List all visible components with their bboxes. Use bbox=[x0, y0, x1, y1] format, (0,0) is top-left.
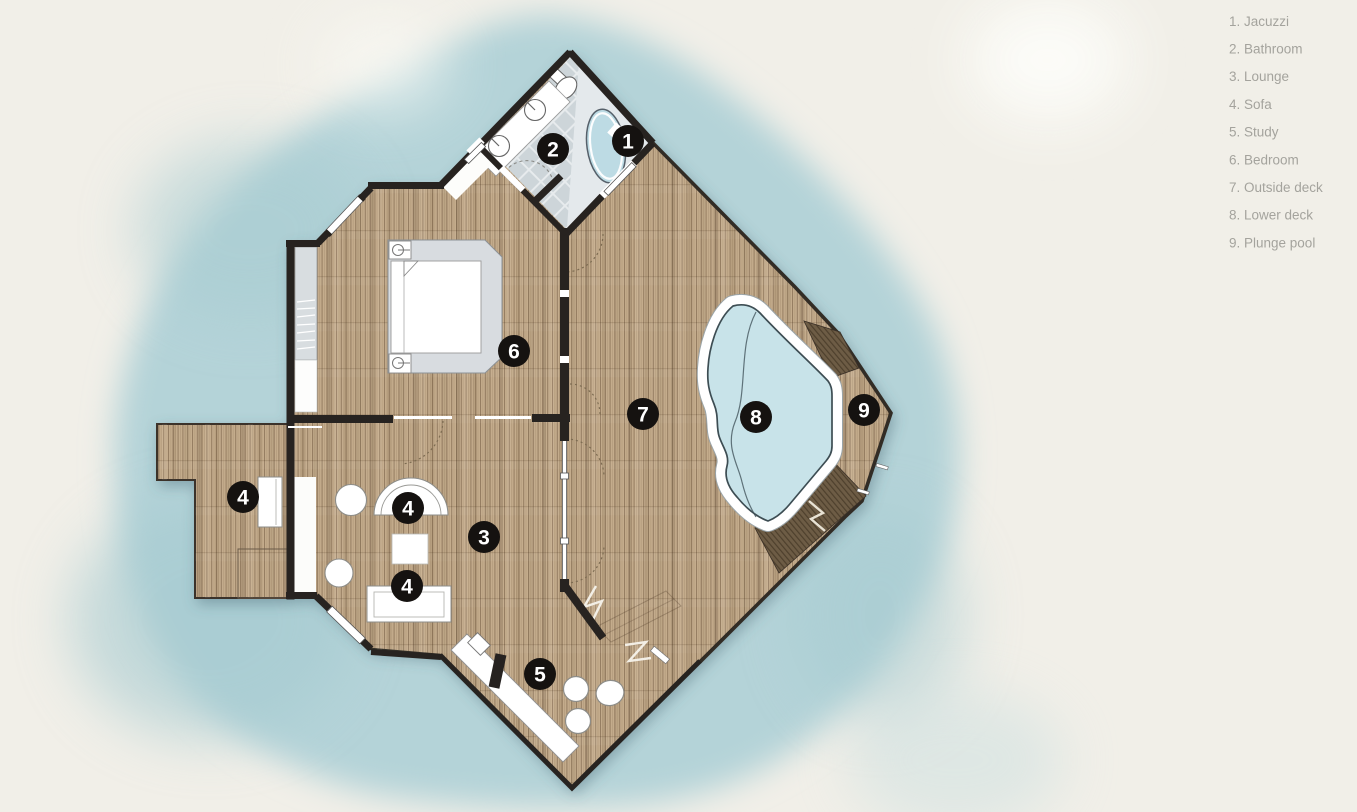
svg-text:6. Bedroom: 6. Bedroom bbox=[1229, 152, 1299, 167]
svg-text:3: 3 bbox=[478, 527, 490, 550]
svg-text:9. Plunge pool: 9. Plunge pool bbox=[1229, 235, 1315, 250]
svg-text:8: 8 bbox=[750, 407, 762, 430]
svg-text:5: 5 bbox=[534, 664, 546, 687]
svg-text:6: 6 bbox=[508, 341, 520, 364]
svg-text:1. Jacuzzi: 1. Jacuzzi bbox=[1229, 14, 1289, 29]
svg-text:8. Lower deck: 8. Lower deck bbox=[1229, 208, 1313, 223]
svg-text:7: 7 bbox=[637, 404, 649, 427]
svg-text:4: 4 bbox=[401, 576, 413, 599]
svg-text:7. Outside deck: 7. Outside deck bbox=[1229, 180, 1323, 195]
svg-text:2: 2 bbox=[547, 139, 559, 162]
svg-text:3. Lounge: 3. Lounge bbox=[1229, 69, 1289, 84]
svg-text:4: 4 bbox=[237, 487, 249, 510]
svg-text:1: 1 bbox=[622, 131, 634, 154]
svg-text:4: 4 bbox=[402, 498, 414, 521]
svg-text:4. Sofa: 4. Sofa bbox=[1229, 97, 1272, 112]
svg-text:2. Bathroom: 2. Bathroom bbox=[1229, 42, 1303, 57]
svg-text:9: 9 bbox=[858, 400, 870, 423]
svg-text:5. Study: 5. Study bbox=[1229, 125, 1279, 140]
